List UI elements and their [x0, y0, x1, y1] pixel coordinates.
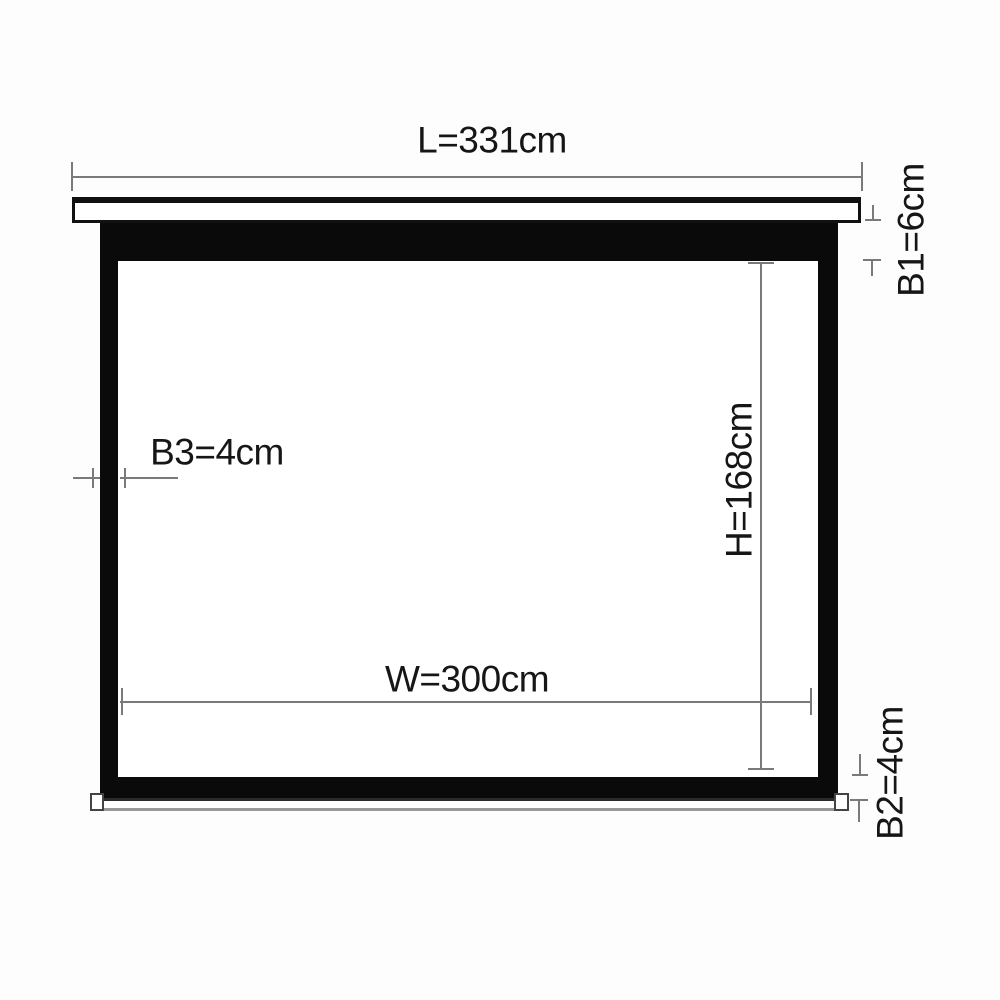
- bottom-border-label: B2=4cm: [872, 706, 909, 840]
- viewing-area: [118, 261, 818, 777]
- b1-tick-bottom-stem: [871, 260, 873, 276]
- slat-endcap-left: [90, 793, 104, 811]
- height-tick-bottom: [748, 768, 774, 770]
- b3-tick-left: [92, 468, 94, 488]
- bottom-slat: [100, 798, 838, 811]
- b3-extension-line-left: [73, 477, 100, 479]
- b1-tick-top-stem: [872, 205, 874, 220]
- screen-housing-case: [72, 197, 861, 223]
- b2-tick-top-stem: [859, 754, 861, 775]
- length-tick-right: [861, 162, 863, 191]
- length-tick-left: [71, 162, 73, 191]
- b3-extension-line-right: [120, 477, 178, 479]
- height-tick-top: [748, 262, 774, 264]
- b1-tick-top-bar: [865, 219, 881, 221]
- length-label: L=331cm: [417, 122, 567, 159]
- width-tick-left: [121, 688, 123, 715]
- width-tick-right: [810, 688, 812, 715]
- top-border-label: B1=6cm: [893, 163, 930, 297]
- width-dimension-line: [120, 701, 812, 703]
- height-label: H=168cm: [721, 402, 758, 558]
- b3-tick-right: [124, 468, 126, 488]
- length-dimension-line: [72, 176, 862, 178]
- side-border-label: B3=4cm: [150, 434, 284, 471]
- slat-endcap-right: [834, 793, 849, 811]
- b2-tick-bottom-stem: [858, 800, 860, 822]
- dimension-drawing: L=331cm B1=6cm H=168cm B3=4cm W=300cm: [0, 0, 1000, 1000]
- width-label: W=300cm: [385, 661, 549, 698]
- height-dimension-line: [760, 263, 762, 769]
- b2-tick-top-bar: [852, 774, 868, 776]
